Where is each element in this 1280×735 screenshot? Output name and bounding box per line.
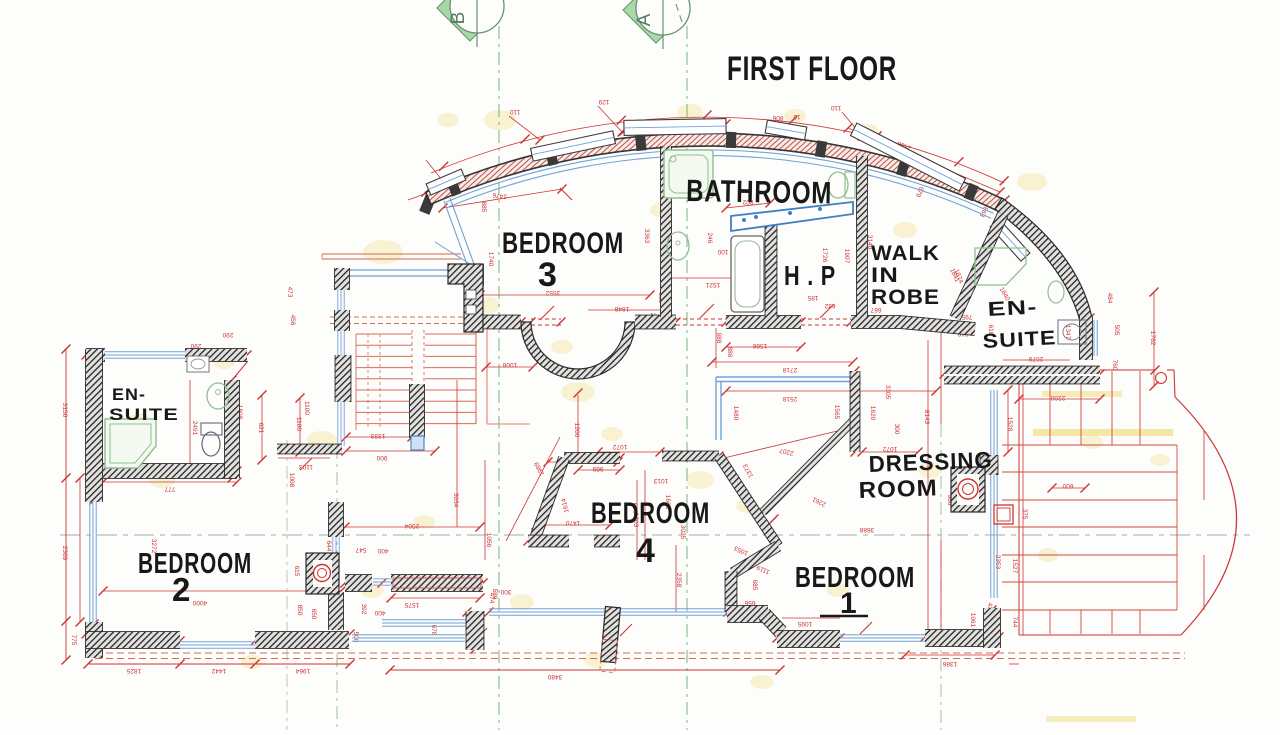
svg-text:744: 744 bbox=[1011, 617, 1018, 628]
svg-text:1442: 1442 bbox=[211, 667, 226, 674]
svg-text:2504: 2504 bbox=[404, 522, 419, 529]
svg-text:300: 300 bbox=[893, 424, 900, 435]
svg-text:505: 505 bbox=[1113, 325, 1120, 336]
svg-text:290: 290 bbox=[190, 342, 201, 349]
svg-text:1333: 1333 bbox=[370, 432, 385, 439]
svg-text:474: 474 bbox=[488, 593, 495, 604]
svg-text:IN: IN bbox=[871, 264, 899, 287]
svg-text:886: 886 bbox=[726, 347, 733, 358]
svg-text:392: 392 bbox=[360, 604, 367, 615]
svg-text:885: 885 bbox=[480, 202, 487, 213]
svg-text:850: 850 bbox=[296, 605, 303, 616]
svg-text:8143: 8143 bbox=[923, 410, 930, 425]
svg-text:1848: 1848 bbox=[614, 305, 629, 312]
svg-text:775: 775 bbox=[70, 635, 77, 646]
svg-text:1095: 1095 bbox=[797, 620, 812, 627]
svg-text:3305: 3305 bbox=[884, 385, 891, 400]
svg-text:1008: 1008 bbox=[288, 473, 295, 488]
svg-text:969: 969 bbox=[592, 465, 603, 472]
svg-text:4000: 4000 bbox=[192, 599, 207, 606]
svg-text:2200: 2200 bbox=[1050, 394, 1065, 401]
svg-text:2491: 2491 bbox=[191, 421, 198, 436]
svg-text:ROOM: ROOM bbox=[858, 474, 938, 503]
svg-text:EN-: EN- bbox=[112, 385, 146, 404]
svg-text:1907: 1907 bbox=[843, 249, 850, 264]
svg-text:656: 656 bbox=[744, 599, 755, 606]
svg-text:110: 110 bbox=[509, 108, 520, 115]
svg-text:1575: 1575 bbox=[404, 601, 419, 608]
svg-text:777: 777 bbox=[164, 485, 175, 492]
svg-text:615: 615 bbox=[293, 566, 300, 577]
svg-text:290: 290 bbox=[222, 331, 233, 338]
svg-text:SUITE: SUITE bbox=[109, 405, 179, 424]
svg-text:375: 375 bbox=[1021, 509, 1028, 520]
svg-text:2518: 2518 bbox=[782, 395, 797, 402]
svg-text:1568: 1568 bbox=[752, 342, 767, 349]
svg-text:WALK: WALK bbox=[871, 242, 940, 265]
svg-text:2: 2 bbox=[172, 571, 191, 608]
svg-text:1470: 1470 bbox=[565, 519, 580, 526]
svg-text:BEDROOM: BEDROOM bbox=[502, 227, 624, 260]
svg-text:DRESSING: DRESSING bbox=[868, 447, 993, 477]
svg-text:BEDROOM: BEDROOM bbox=[138, 548, 252, 580]
svg-text:1061: 1061 bbox=[969, 613, 976, 628]
svg-text:900: 900 bbox=[376, 454, 387, 461]
svg-text:1480: 1480 bbox=[732, 406, 739, 421]
svg-text:1100: 1100 bbox=[295, 417, 302, 431]
svg-text:760: 760 bbox=[1111, 360, 1118, 371]
svg-text:644: 644 bbox=[325, 541, 332, 552]
svg-text:1521: 1521 bbox=[705, 281, 720, 288]
svg-text:456: 456 bbox=[289, 315, 296, 326]
svg-text:1100: 1100 bbox=[303, 401, 310, 415]
svg-text:EN-: EN- bbox=[987, 296, 1038, 321]
svg-text:1072: 1072 bbox=[612, 443, 627, 450]
svg-text:3034: 3034 bbox=[452, 493, 459, 508]
svg-text:1620: 1620 bbox=[869, 406, 876, 421]
svg-text:100: 100 bbox=[717, 248, 728, 255]
svg-text:3688: 3688 bbox=[859, 526, 874, 533]
svg-text:1386: 1386 bbox=[942, 660, 957, 667]
svg-text:110: 110 bbox=[830, 104, 841, 111]
svg-text:SUITE: SUITE bbox=[982, 327, 1057, 353]
svg-text:400: 400 bbox=[374, 609, 385, 616]
svg-text:1200: 1200 bbox=[573, 423, 580, 438]
svg-text:1527: 1527 bbox=[1011, 559, 1018, 574]
svg-text:600: 600 bbox=[1062, 482, 1073, 489]
svg-text:1008: 1008 bbox=[502, 361, 517, 368]
svg-text:FIRST FLOOR: FIRST FLOOR bbox=[727, 50, 897, 88]
svg-text:3480: 3480 bbox=[547, 673, 562, 680]
svg-text:H . P: H . P bbox=[784, 260, 836, 291]
svg-text:2079: 2079 bbox=[1028, 355, 1043, 362]
svg-text:4: 4 bbox=[636, 532, 656, 570]
svg-text:1825: 1825 bbox=[126, 667, 141, 674]
svg-text:1565: 1565 bbox=[833, 405, 840, 420]
svg-text:3: 3 bbox=[538, 256, 558, 294]
svg-text:B: B bbox=[448, 12, 469, 25]
svg-text:BEDROOM: BEDROOM bbox=[591, 497, 710, 530]
svg-text:2369: 2369 bbox=[61, 546, 68, 561]
svg-text:3363: 3363 bbox=[643, 229, 650, 244]
svg-text:1013: 1013 bbox=[653, 477, 668, 484]
svg-text:ROBE: ROBE bbox=[871, 286, 940, 309]
svg-text:BATHROOM: BATHROOM bbox=[686, 173, 833, 211]
svg-text:1740: 1740 bbox=[487, 252, 494, 267]
svg-text:A: A bbox=[634, 13, 655, 26]
svg-text:1964: 1964 bbox=[295, 667, 310, 674]
svg-text:2718: 2718 bbox=[782, 366, 797, 373]
svg-text:1528: 1528 bbox=[1006, 417, 1013, 432]
svg-text:650: 650 bbox=[310, 609, 317, 620]
svg-text:547: 547 bbox=[355, 546, 366, 553]
svg-text:400: 400 bbox=[377, 547, 388, 554]
svg-text:185: 185 bbox=[807, 294, 818, 301]
svg-text:246: 246 bbox=[706, 233, 713, 244]
svg-text:1056: 1056 bbox=[485, 533, 492, 548]
svg-text:484: 484 bbox=[1106, 293, 1113, 304]
svg-text:473: 473 bbox=[286, 287, 293, 298]
svg-text:129: 129 bbox=[598, 98, 609, 105]
svg-text:300: 300 bbox=[500, 588, 511, 595]
svg-text:1762: 1762 bbox=[1149, 331, 1156, 346]
svg-text:685: 685 bbox=[751, 580, 758, 591]
svg-text:621: 621 bbox=[257, 423, 264, 434]
svg-text:3150: 3150 bbox=[61, 403, 68, 418]
